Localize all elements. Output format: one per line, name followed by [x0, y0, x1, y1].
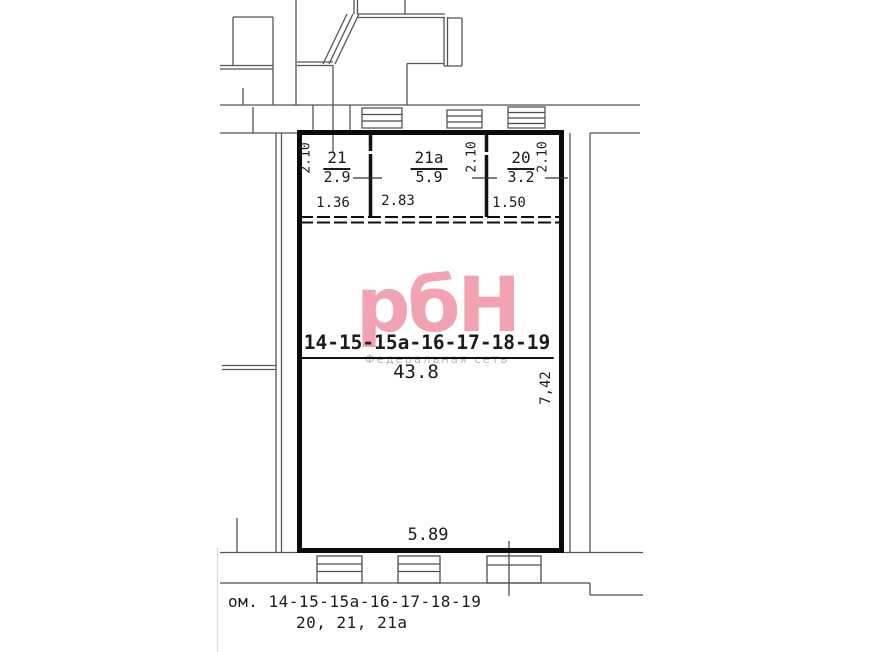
main-room-id: 14-15-15а-16-17-18-19	[301, 333, 554, 359]
room-20-id: 20	[507, 150, 534, 170]
room-21a-height-dim: 2.10	[466, 141, 479, 172]
main-room-area: 43.8	[393, 363, 439, 382]
room-20-area: 3.2	[507, 170, 534, 185]
caption-line-1: ом. 14-15-15а-16-17-18-19	[228, 594, 481, 610]
upper-structure-lines	[220, 0, 640, 152]
left-corridor-lines	[220, 133, 297, 553]
caption-line-2: 20, 21, 21а	[296, 615, 407, 631]
room-21a-width-dim: 2.83	[381, 194, 415, 208]
room-20-width-dim: 1.50	[492, 196, 526, 210]
room-21a-area: 5.9	[415, 170, 442, 185]
room-20-height-dim: 2.10	[537, 141, 550, 172]
room-21-height-dim: 2.10	[300, 142, 313, 173]
room-21-id: 21	[323, 150, 350, 170]
main-room-width-dim: 5.89	[408, 527, 449, 544]
room-21a-id: 21а	[411, 150, 448, 170]
right-neighbour-lines	[564, 133, 643, 553]
main-room-height-dim: 7,42	[539, 371, 553, 405]
floorplan-page: рбН Федеральная сеть 21 2.9 1.36 2.10 21…	[0, 0, 870, 652]
staircase-lines	[323, 14, 359, 64]
room-21-width-dim: 1.36	[316, 196, 350, 210]
room-21-area: 2.9	[323, 170, 350, 185]
top-window-symbols	[362, 107, 545, 128]
dashed-partition	[300, 217, 560, 223]
